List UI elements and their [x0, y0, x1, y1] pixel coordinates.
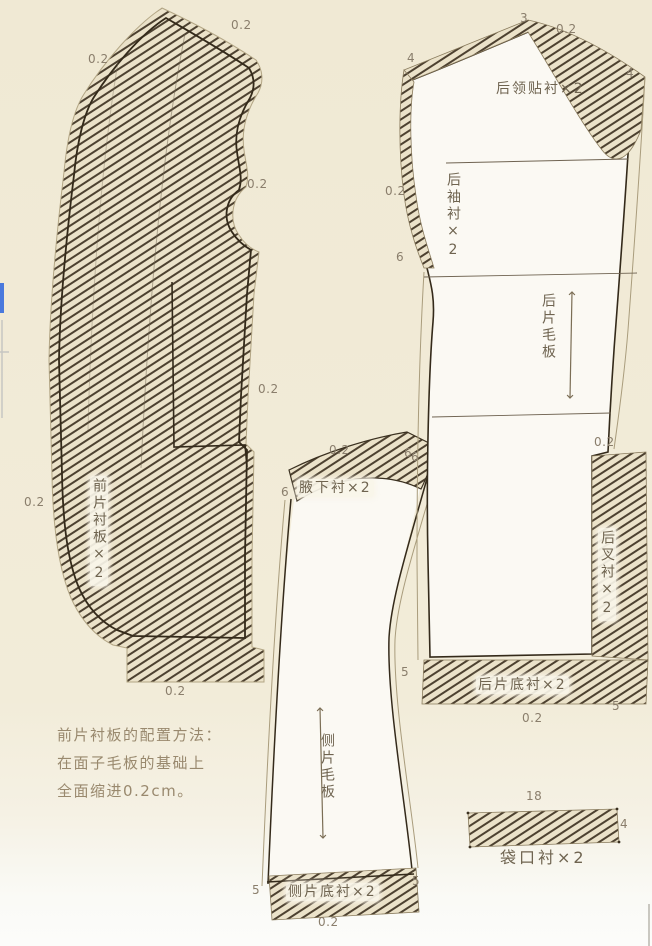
- side-piece-label: 侧片毛板: [320, 733, 334, 801]
- side-notch-6-left: 6: [281, 486, 289, 498]
- side-notch-5-left: 5: [252, 884, 260, 896]
- side-bottom-interfacing-label: 侧片底衬×2: [286, 883, 379, 901]
- pocket-interfacing-strip: [468, 809, 619, 847]
- side-notch-5-right: 5: [412, 875, 420, 887]
- front-seam-02-top-left: 0.2: [88, 53, 109, 65]
- front-seam-02-left: 0.2: [24, 496, 45, 508]
- front-seam-02-right: 0.2: [258, 383, 279, 395]
- pattern-diagram: [0, 0, 652, 946]
- back-seam-02-left: 0.2: [385, 185, 406, 197]
- pocket-width-18: 18: [526, 790, 542, 802]
- side-piece-body: [268, 477, 420, 882]
- side-seam-02-top: 0.2: [329, 444, 350, 456]
- collar-interfacing-label: 后领贴衬×2: [496, 82, 585, 96]
- back-notch-5-right: 5: [612, 700, 620, 712]
- pocket-height-4: 4: [620, 818, 628, 830]
- pocket-interfacing-label: 袋口衬×2: [500, 850, 587, 866]
- pocket-corner-dot: [618, 841, 621, 844]
- note-line-1: 前片衬板的配置方法：: [57, 728, 222, 743]
- back-notch-6-lower: 6: [404, 447, 412, 459]
- pocket-corner-dot: [467, 812, 470, 815]
- side-seam-02-bottom: 0.2: [318, 916, 339, 928]
- front-seam-02-bottom: 0.2: [165, 685, 186, 697]
- back-piece-label: 后片毛板: [541, 293, 555, 361]
- note-line-2: 在面子毛板的基础上: [57, 756, 206, 771]
- back-bottom-interfacing-label: 后片底衬×2: [476, 676, 569, 694]
- front-seam-02-top-right: 0.2: [231, 19, 252, 31]
- back-notch-4-left: 4: [407, 52, 415, 64]
- vent-interfacing-label: 后叉衬×2: [598, 528, 616, 621]
- back-seam-02-bottom: 0.2: [522, 712, 543, 724]
- back-seam-02-top: 0.2: [556, 23, 577, 35]
- side-notch-6-right: 6: [411, 451, 419, 463]
- back-notch-4-right: 4: [626, 67, 634, 79]
- pocket-corner-dot: [469, 846, 472, 849]
- underarm-interfacing-label: 腋下衬×2: [297, 479, 374, 497]
- note-line-3: 全面缩进0.2cm。: [57, 784, 194, 799]
- front-seam-02-armhole: 0.2: [247, 178, 268, 190]
- back-seam-02-right: 0.2: [594, 436, 615, 448]
- back-notch-3: 3: [520, 12, 528, 24]
- sleeve-interfacing-label: 后袖衬×2: [446, 172, 460, 261]
- back-notch-5-left: 5: [401, 666, 409, 678]
- front-piece-label: 前片衬板×2: [90, 476, 108, 586]
- pocket-corner-dot: [616, 808, 619, 811]
- front-piece-cut-edge: [49, 8, 264, 682]
- scan-artifact-blue: [0, 283, 4, 313]
- back-notch-6-upper: 6: [396, 251, 404, 263]
- sewing-pattern-page: 0.20.20.20.20.20.2前片衬板×20.266腋下衬×2侧片毛板55…: [0, 0, 652, 946]
